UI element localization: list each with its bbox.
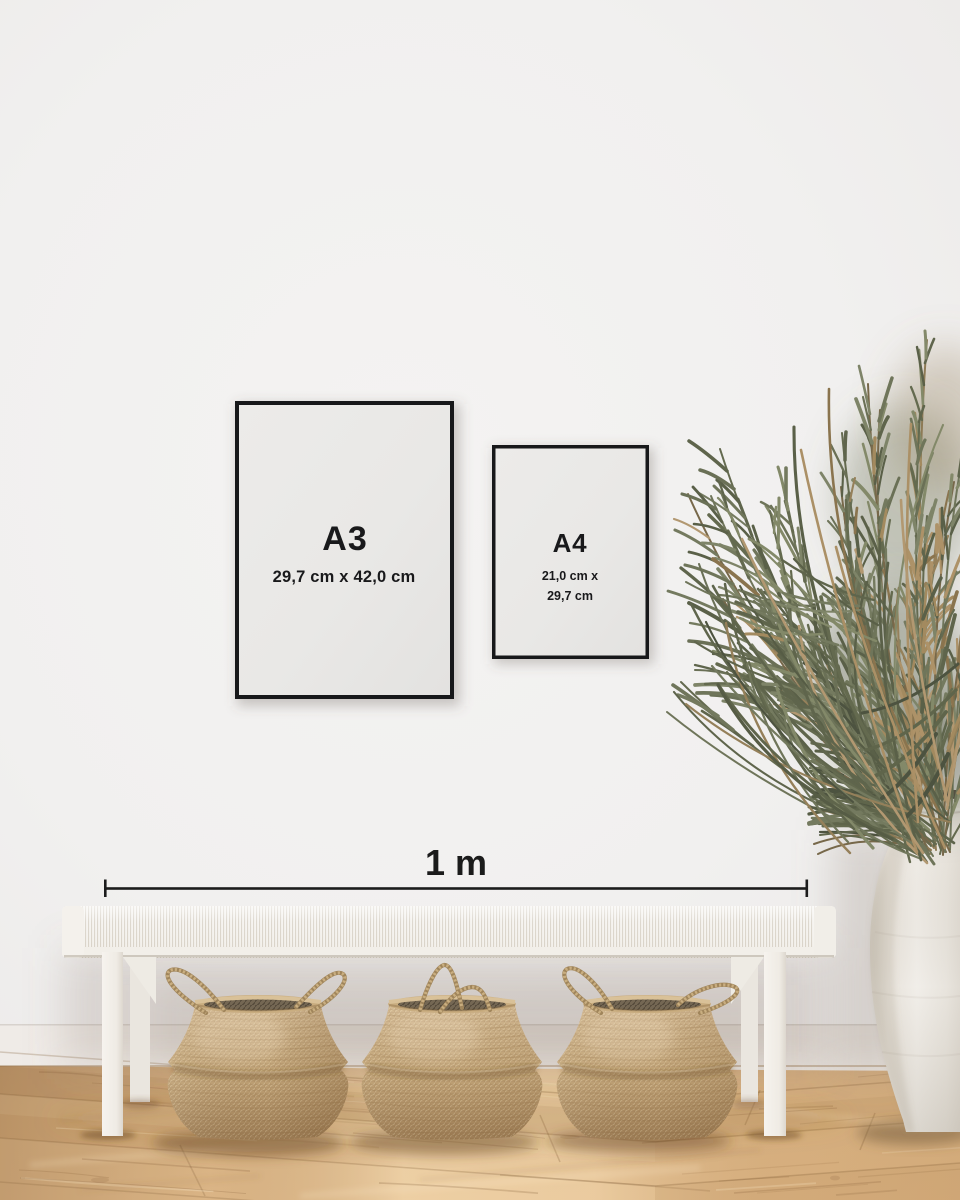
svg-text:A4: A4 — [553, 528, 588, 558]
svg-text:29,7 cm x 42,0 cm: 29,7 cm x 42,0 cm — [273, 568, 416, 586]
svg-text:1 m: 1 m — [425, 842, 487, 883]
svg-text:21,0 cm x: 21,0 cm x — [542, 569, 598, 583]
svg-text:29,7 cm: 29,7 cm — [547, 589, 593, 603]
svg-text:A3: A3 — [322, 520, 367, 558]
